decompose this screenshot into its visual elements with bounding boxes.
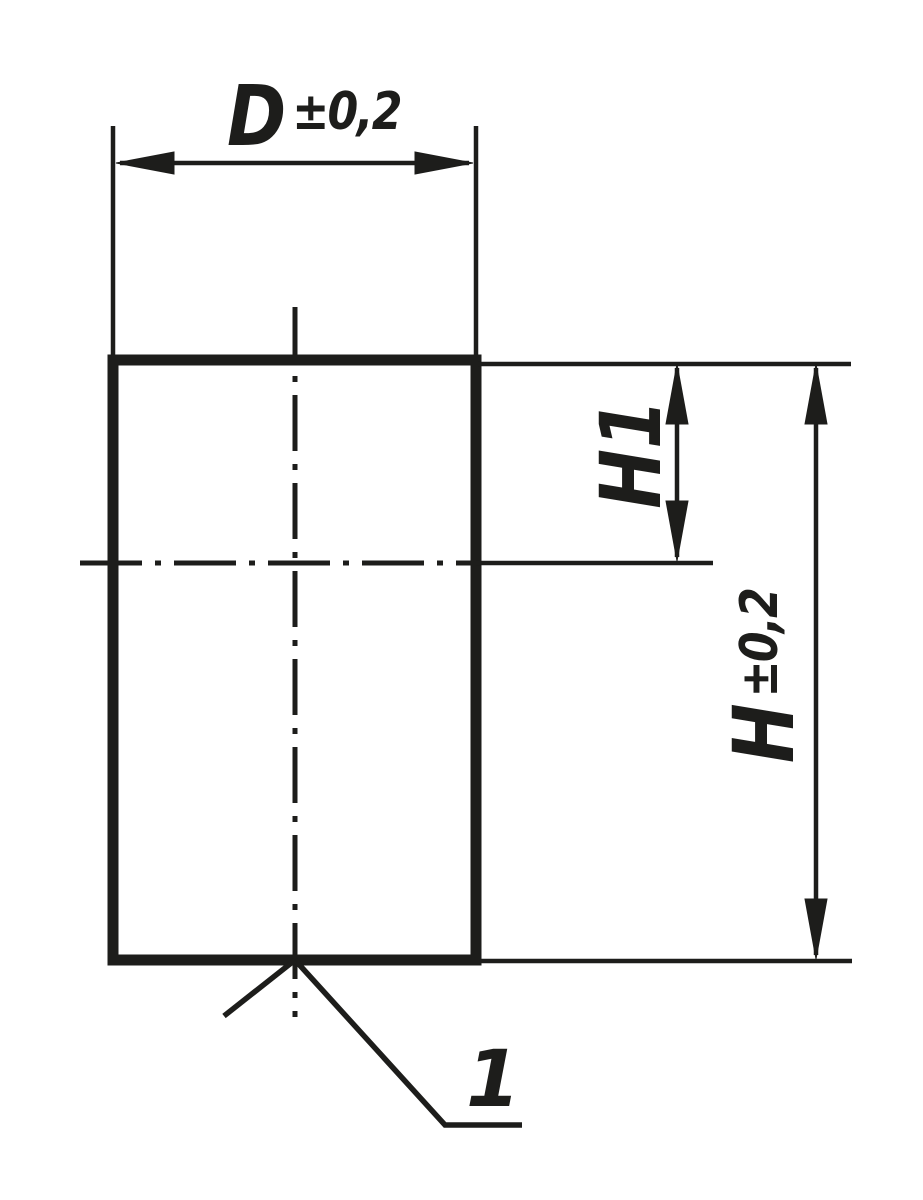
dimension-label-h: H±0,2: [722, 589, 806, 763]
callout-number: 1: [466, 1035, 520, 1125]
dimension-d-letter: D: [227, 67, 286, 165]
callout-leader-tick: [224, 960, 295, 1016]
dimension-d-tolerance: ±0,2: [292, 82, 401, 142]
dimension-h-letter: H: [715, 703, 813, 763]
d-arrowhead-left: [116, 152, 174, 174]
callout-label: 1: [466, 1041, 520, 1119]
technical-drawing-canvas: D±0,2 H1 H±0,2 1: [0, 0, 923, 1200]
h1-arrowhead-bottom: [666, 501, 688, 561]
dimension-label-d: D±0,2: [227, 74, 401, 158]
h-arrowhead-top: [805, 364, 827, 424]
h-arrowhead-bottom: [805, 899, 827, 959]
dimension-label-h1: H1: [589, 399, 673, 508]
d-arrowhead-right: [415, 152, 473, 174]
dimension-h-tolerance: ±0,2: [730, 589, 790, 698]
dimension-h1-text: H1: [582, 399, 680, 508]
